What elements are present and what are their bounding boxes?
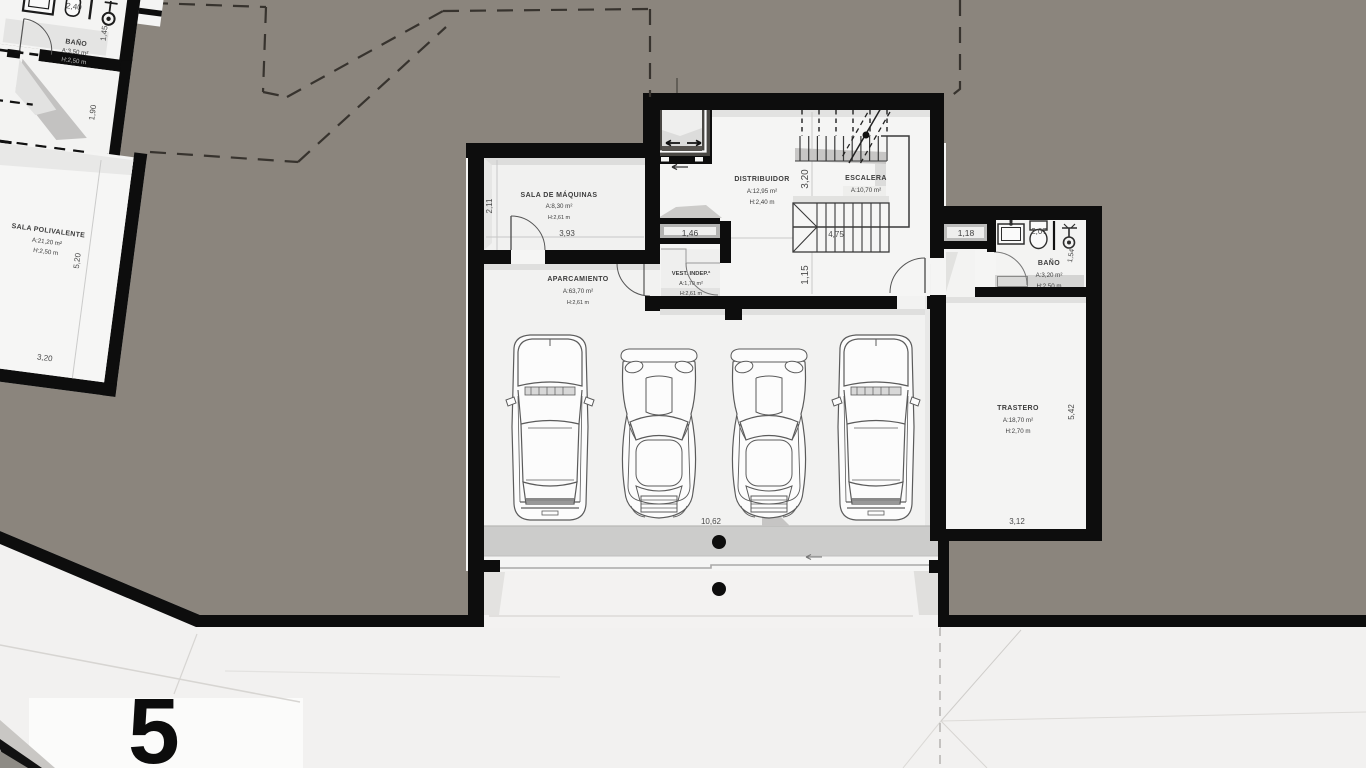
- svg-text:H:2,40 m: H:2,40 m: [749, 199, 774, 206]
- svg-text:5,42: 5,42: [1067, 404, 1076, 420]
- svg-text:A:10,70 m²: A:10,70 m²: [851, 187, 881, 194]
- svg-text:2,11: 2,11: [485, 198, 494, 214]
- svg-text:3,93: 3,93: [559, 229, 575, 238]
- svg-text:1,18: 1,18: [958, 228, 975, 238]
- svg-text:1,15: 1,15: [800, 265, 811, 285]
- svg-text:2,07: 2,07: [1031, 227, 1047, 236]
- svg-text:H:2,70 m: H:2,70 m: [1005, 428, 1030, 435]
- svg-text:ESCALERA: ESCALERA: [845, 175, 887, 182]
- svg-text:A:1,70 m²: A:1,70 m²: [679, 281, 703, 287]
- svg-text:A:8,30 m²: A:8,30 m²: [546, 203, 573, 210]
- svg-text:A:12,95 m²: A:12,95 m²: [747, 188, 777, 195]
- svg-text:4,75: 4,75: [828, 230, 844, 239]
- svg-text:3,20: 3,20: [800, 169, 811, 189]
- svg-text:A:63,70 m²: A:63,70 m²: [563, 288, 593, 295]
- svg-text:BAÑO: BAÑO: [1038, 258, 1060, 267]
- svg-text:VEST. INDEP.ª: VEST. INDEP.ª: [672, 270, 711, 277]
- svg-text:A:18,70 m²: A:18,70 m²: [1003, 417, 1033, 424]
- svg-text:5: 5: [128, 679, 180, 768]
- svg-text:H:2,61 m: H:2,61 m: [548, 215, 571, 221]
- svg-text:3,12: 3,12: [1009, 517, 1025, 526]
- svg-text:APARCAMIENTO: APARCAMIENTO: [547, 276, 608, 283]
- svg-text:H:2,61 m: H:2,61 m: [567, 300, 590, 306]
- svg-text:A:3,20 m²: A:3,20 m²: [1036, 272, 1063, 279]
- svg-text:SALA DE MÁQUINAS: SALA DE MÁQUINAS: [521, 190, 598, 199]
- svg-text:DISTRIBUIDOR: DISTRIBUIDOR: [734, 176, 789, 183]
- svg-text:10,62: 10,62: [701, 517, 722, 526]
- svg-text:TRASTERO: TRASTERO: [997, 405, 1039, 412]
- svg-text:1,46: 1,46: [682, 228, 699, 238]
